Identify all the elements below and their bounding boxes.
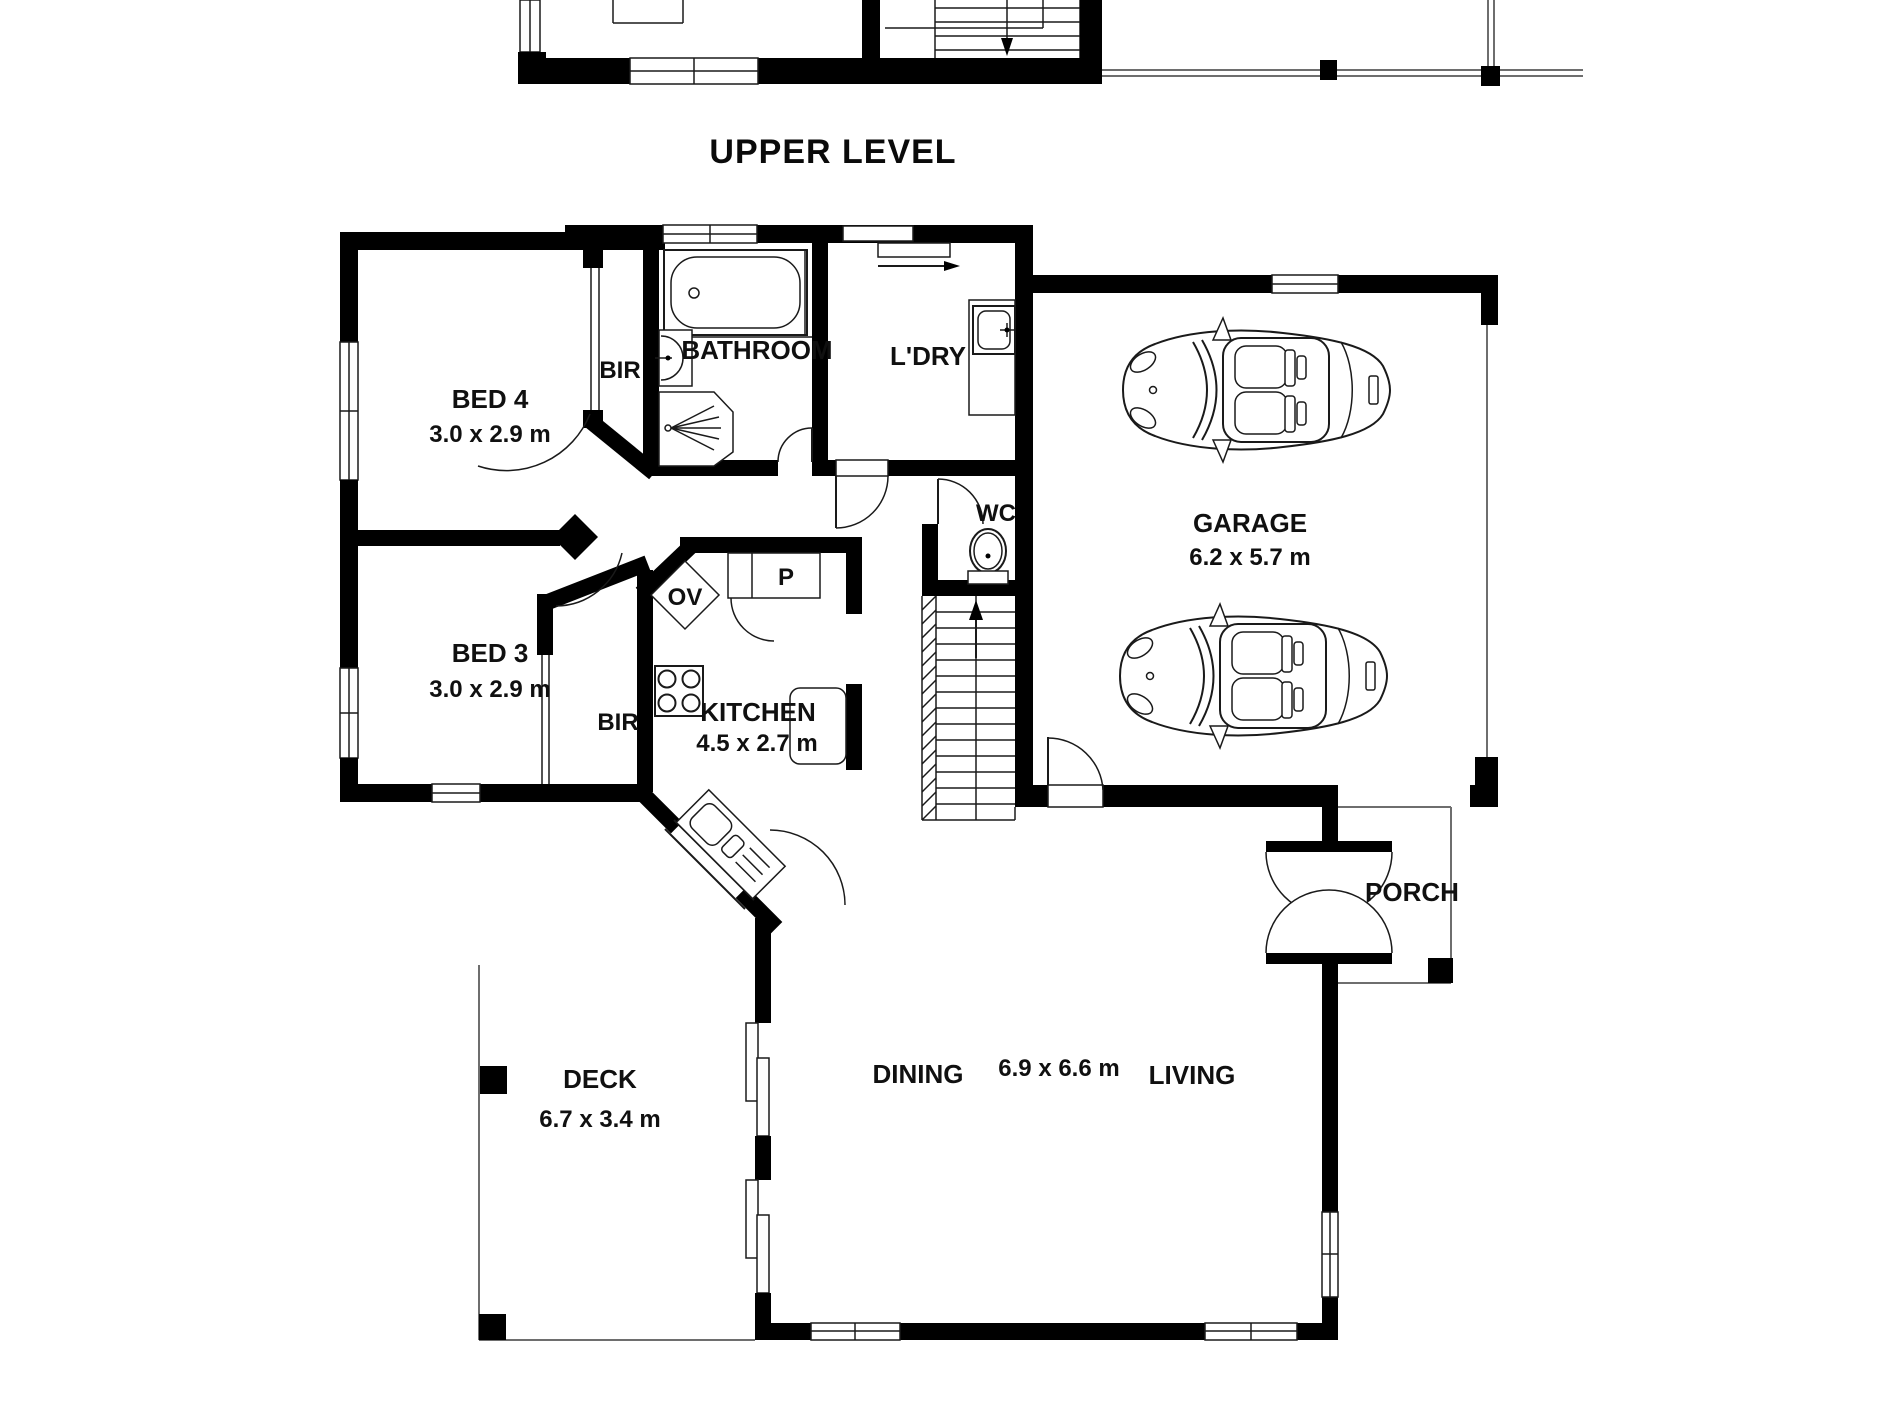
living-label: LIVING <box>1149 1060 1236 1090</box>
laundry-tub-icon <box>969 300 1015 415</box>
pantry-label: P <box>778 564 794 591</box>
plan-title: UPPER LEVEL <box>709 133 956 171</box>
upper-partial-plan <box>518 0 1583 86</box>
bed4-dims: 3.0 x 2.9 m <box>429 421 550 448</box>
bir-bed3-label: BIR <box>597 709 638 736</box>
shower-icon <box>659 392 733 466</box>
kitchen-sink-icon <box>676 790 785 899</box>
garage-label: GARAGE <box>1193 508 1307 538</box>
bathroom-label: BATHROOM <box>681 335 832 365</box>
bed4-label: BED 4 <box>452 384 529 414</box>
deck-outline <box>479 965 755 1340</box>
deck-label: DECK <box>563 1064 637 1094</box>
wc-label: WC <box>976 500 1016 527</box>
porch-label: PORCH <box>1365 877 1459 907</box>
room-labels: BED 4 3.0 x 2.9 m BED 3 3.0 x 2.9 m BIR … <box>429 335 1459 1133</box>
kitchen-dims: 4.5 x 2.7 m <box>696 730 817 757</box>
floorplan-canvas: UPPER LEVEL <box>0 0 1900 1425</box>
laundry-label: L'DRY <box>890 341 966 371</box>
bir-bed4-label: BIR <box>599 357 640 384</box>
car-icon <box>1123 318 1390 462</box>
floorplan-page: UPPER LEVEL <box>0 0 1900 1425</box>
garage-dims: 6.2 x 5.7 m <box>1189 544 1310 571</box>
living-dining-dims: 6.9 x 6.6 m <box>998 1055 1119 1082</box>
stairs-down-icon <box>935 0 1080 58</box>
car-icon <box>1120 604 1387 748</box>
dining-label: DINING <box>873 1059 964 1089</box>
bed3-label: BED 3 <box>452 638 529 668</box>
bed3-dims: 3.0 x 2.9 m <box>429 676 550 703</box>
toilet-icon <box>968 529 1008 584</box>
deck-dims: 6.7 x 3.4 m <box>539 1106 660 1133</box>
stairs-up-icon <box>922 596 1015 820</box>
pantry-icon <box>728 553 820 598</box>
cooktop-icon <box>655 666 703 716</box>
bathtub-icon <box>659 250 812 337</box>
oven-label: OV <box>668 584 703 611</box>
kitchen-label: KITCHEN <box>700 697 816 727</box>
